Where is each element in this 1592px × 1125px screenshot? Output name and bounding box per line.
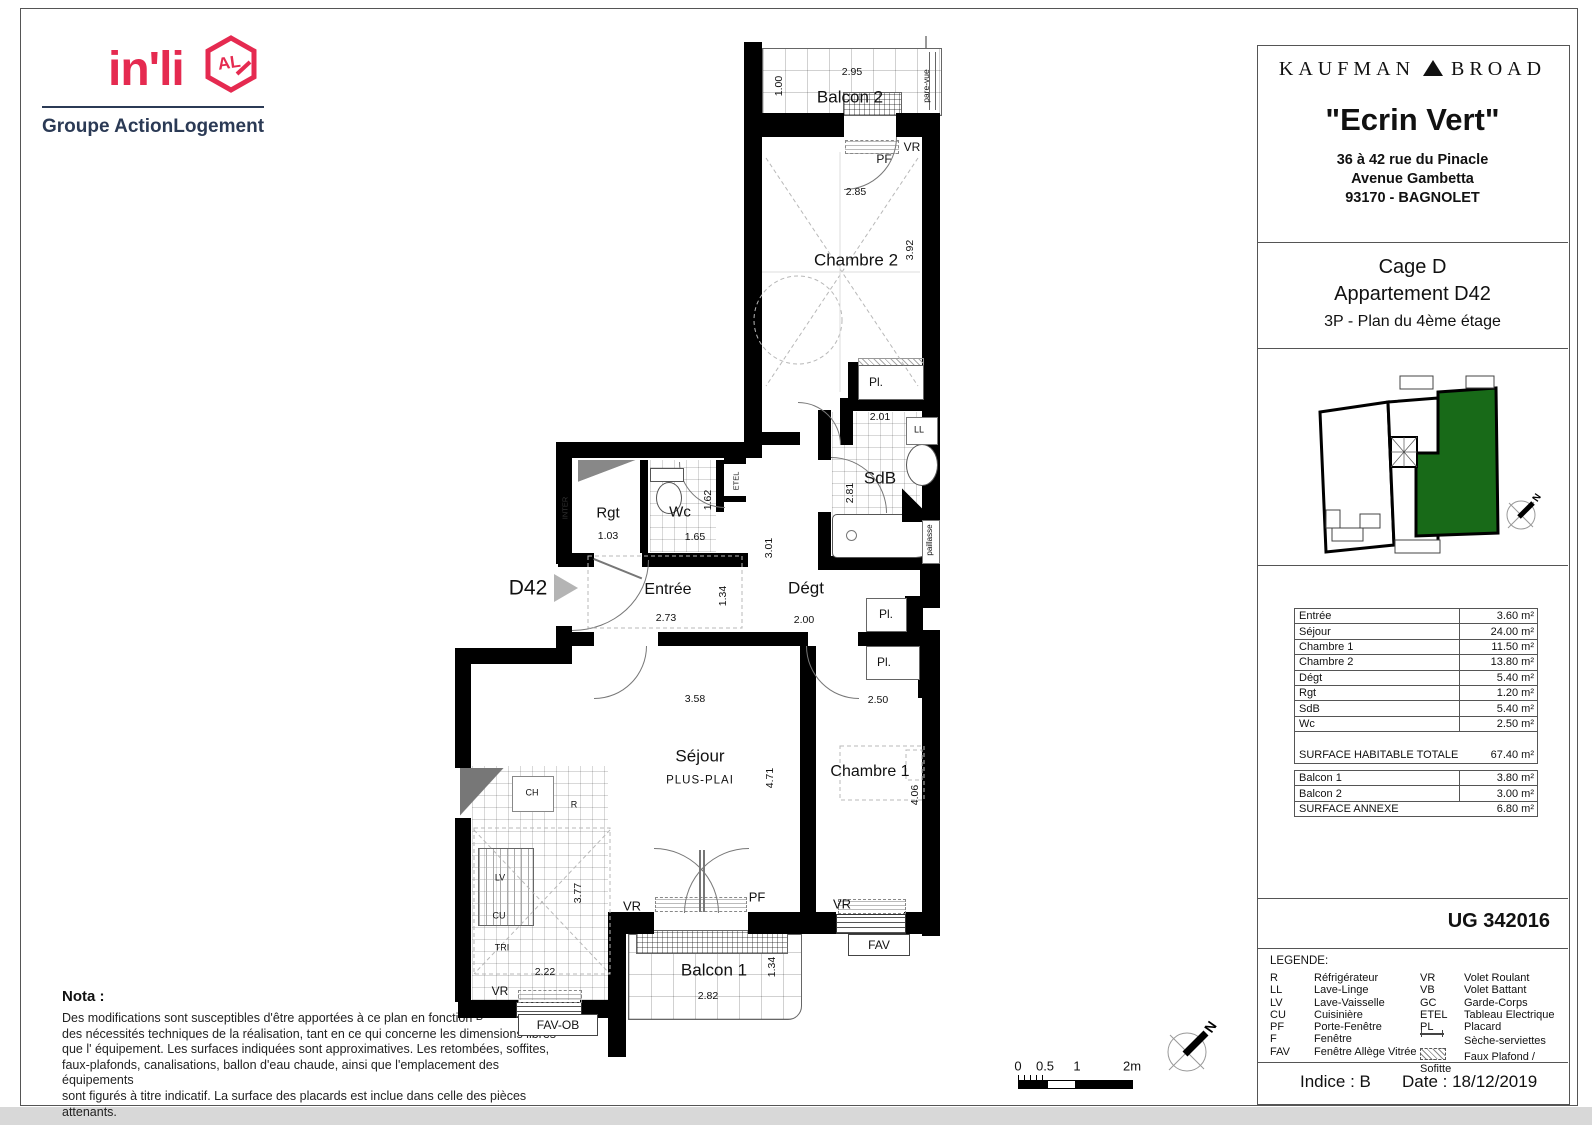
room-label: Entrée [644, 582, 691, 598]
unit-arrow-icon [554, 574, 578, 602]
room-label: SdB [864, 470, 896, 487]
room-label: Rgt [596, 506, 619, 521]
compass-icon: N [1168, 1018, 1220, 1071]
room-label: Chambre 1 [830, 764, 909, 780]
room-label: Séjour [675, 748, 724, 765]
room-label: Dégt [788, 580, 824, 597]
unit-marker: D42 [509, 578, 548, 599]
plan-detail-lines: N [0, 0, 1592, 1125]
room-label: Wc [669, 505, 691, 520]
window-tag: FAV [848, 934, 910, 956]
room-label: Chambre 2 [814, 252, 898, 269]
room-label: Balcon 1 [681, 962, 747, 979]
window-tag: FAV-OB [518, 1014, 598, 1036]
plan-sheet: in'li AL Groupe ActionLogement KAUFMANBR… [0, 0, 1592, 1125]
room-label: Balcon 2 [817, 89, 883, 106]
